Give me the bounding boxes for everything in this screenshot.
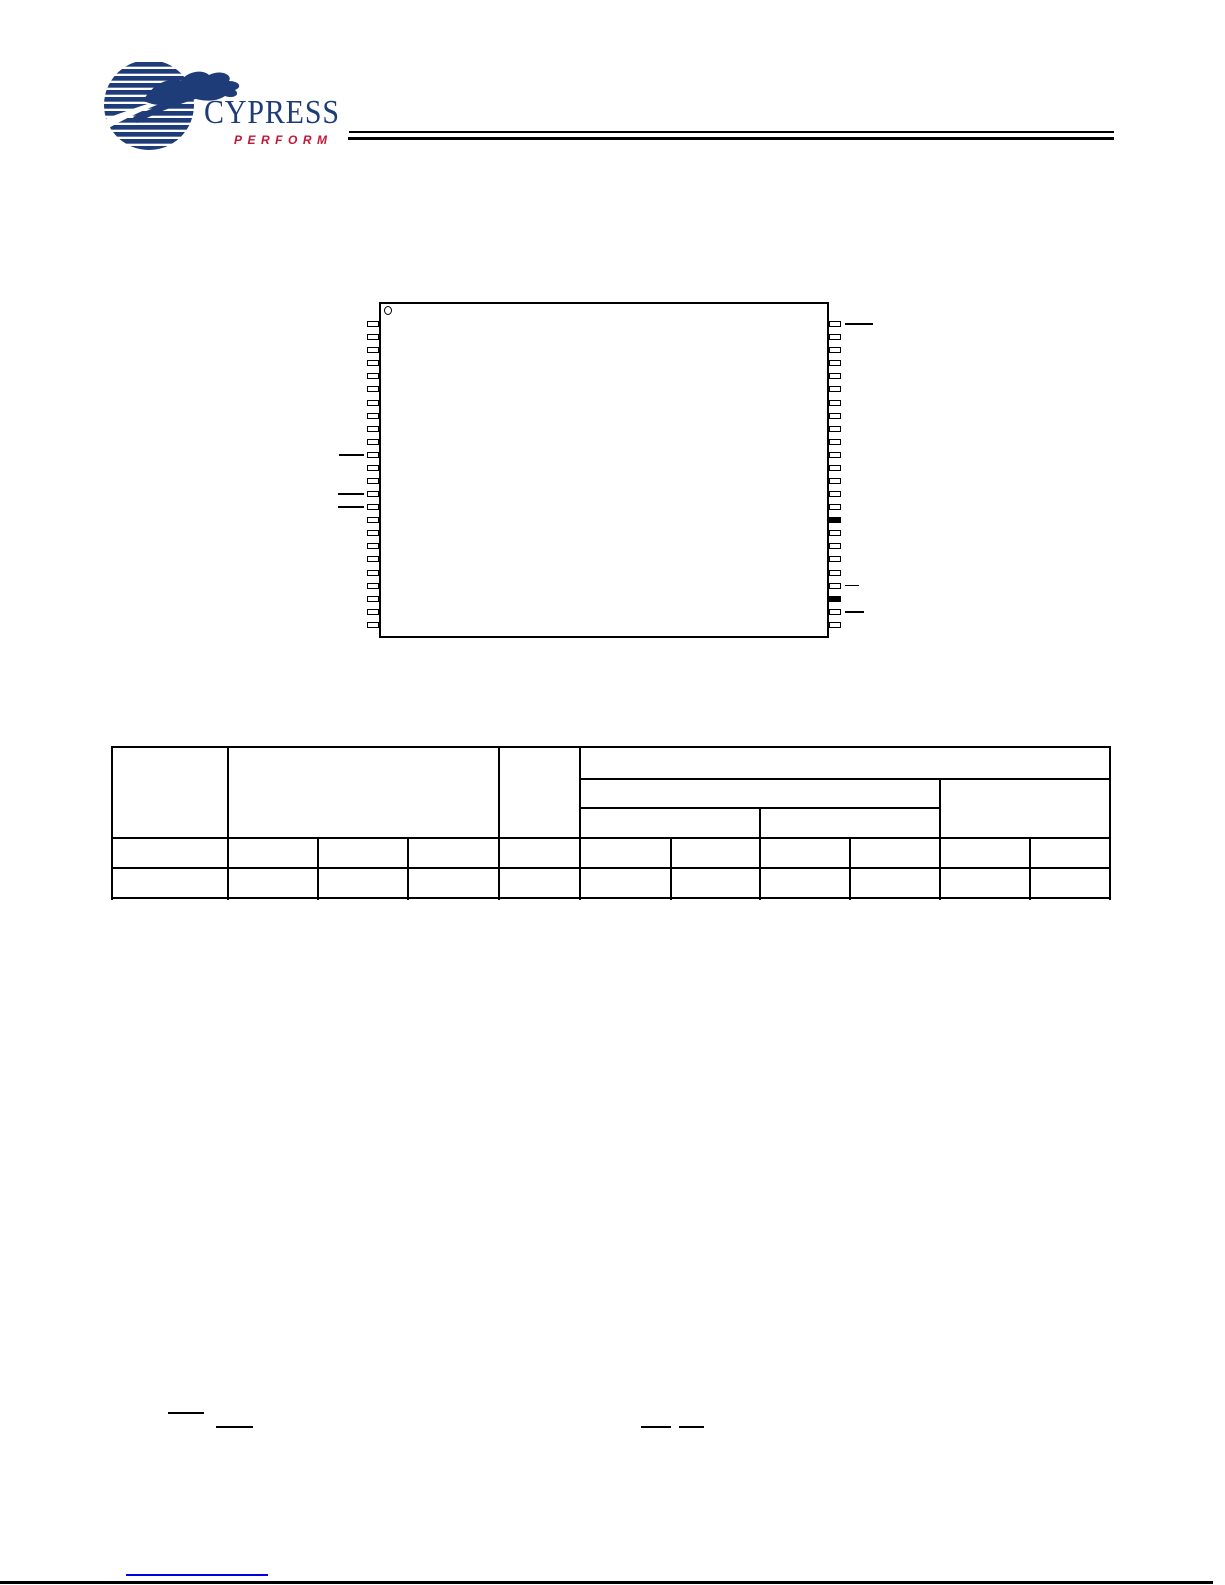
chip-pin-right — [829, 465, 841, 471]
chip-pin-left — [367, 334, 379, 340]
chip-pin-left — [367, 556, 379, 562]
chip-pin-right — [829, 452, 841, 458]
pin1-indicator-icon — [384, 306, 392, 315]
chip-pin-right — [829, 413, 841, 419]
chip-pin-left — [367, 583, 379, 589]
chip-pin-right — [829, 609, 841, 615]
chip-pin-left — [367, 504, 379, 510]
logo-brand-text: CYPRESS — [204, 96, 340, 130]
table-grid-line — [579, 778, 1111, 780]
chip-pin-right — [829, 400, 841, 406]
table-grid-line — [670, 838, 672, 900]
pin-leader-line-left — [338, 493, 364, 495]
chip-pin-left — [367, 426, 379, 432]
chip-pin-right — [829, 622, 841, 628]
chip-pin-right — [829, 530, 841, 536]
chip-pin-right — [829, 556, 841, 562]
chip-pin-right — [829, 491, 841, 497]
header-rule-thick — [348, 137, 1114, 140]
chip-pin-left — [367, 478, 379, 484]
chip-pin-left — [367, 543, 379, 549]
text-overbar-mark — [641, 1426, 671, 1428]
chip-pin-left — [367, 452, 379, 458]
pin-leader-line-left — [338, 506, 364, 508]
pin-leader-line-right — [845, 323, 873, 325]
chip-pin-left — [367, 321, 379, 327]
logo-tagline-text: PERFORM — [234, 133, 333, 147]
table-grid-line — [1109, 747, 1111, 900]
chip-pin-right — [829, 373, 841, 379]
chip-pin-right — [829, 347, 841, 353]
table-grid-line — [849, 838, 851, 900]
table-grid-line — [227, 747, 229, 900]
chip-pin-right — [829, 321, 841, 327]
text-overbar-mark — [168, 1412, 204, 1414]
chip-pin-left — [367, 622, 379, 628]
chip-pin-right — [829, 478, 841, 484]
chip-pin-left — [367, 530, 379, 536]
chip-pin-left — [367, 386, 379, 392]
cypress-logo: CYPRESS PERFORM — [100, 52, 360, 152]
chip-pin-right — [829, 583, 841, 589]
table-grid-line — [111, 897, 1111, 899]
table-grid-line — [579, 807, 941, 809]
chip-pin-right — [829, 543, 841, 549]
table-grid-line — [759, 808, 761, 900]
chip-pin-right — [829, 386, 841, 392]
chip-pin-left — [367, 413, 379, 419]
chip-pin-left — [367, 347, 379, 353]
chip-pin-right — [829, 426, 841, 432]
chip-pin-left — [367, 491, 379, 497]
footer-rule — [0, 1581, 1213, 1584]
chip-pin-right — [829, 439, 841, 445]
table-grid-line — [111, 867, 1111, 869]
pin-leader-line-left — [339, 454, 364, 456]
table-grid-line — [317, 838, 319, 900]
table-grid-line — [407, 838, 409, 900]
chip-body-outline — [379, 302, 829, 638]
datasheet-page: CYPRESS PERFORM — [0, 0, 1225, 1585]
chip-pin-left — [367, 360, 379, 366]
table-grid-line — [939, 779, 941, 900]
footer-link-underline[interactable] — [126, 1574, 268, 1576]
text-overbar-mark — [679, 1426, 704, 1428]
table-grid-line — [111, 747, 113, 900]
chip-pin-left — [367, 570, 379, 576]
chip-pin-right — [829, 517, 841, 523]
chip-pin-left — [367, 439, 379, 445]
chip-pin-right — [829, 504, 841, 510]
chip-pin-left — [367, 609, 379, 615]
chip-pin-left — [367, 517, 379, 523]
table-grid-line — [111, 837, 1111, 839]
chip-pin-right — [829, 334, 841, 340]
chip-pin-right — [829, 596, 841, 602]
table-grid-line — [579, 747, 581, 900]
table-grid-line — [111, 746, 1111, 748]
pin-leader-line-right — [845, 585, 859, 587]
table-grid-line — [498, 747, 500, 900]
text-overbar-mark — [216, 1426, 253, 1428]
chip-pin-left — [367, 373, 379, 379]
chip-pin-right — [829, 360, 841, 366]
chip-pin-right — [829, 570, 841, 576]
table-grid-line — [1029, 838, 1031, 900]
chip-pin-left — [367, 465, 379, 471]
chip-pin-left — [367, 596, 379, 602]
chip-pin-left — [367, 400, 379, 406]
pin-leader-line-right — [845, 611, 864, 613]
header-rule-thin — [349, 131, 1114, 133]
